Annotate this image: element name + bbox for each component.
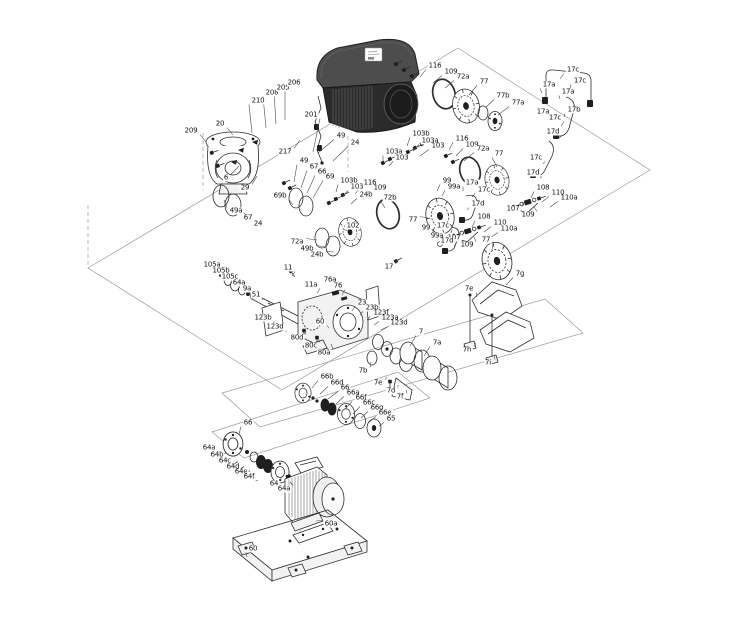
part-label: 99 <box>421 225 432 232</box>
part-label: 77 <box>479 79 490 86</box>
part-label: 206 <box>287 80 302 87</box>
part-label: 77 <box>408 217 419 224</box>
part-label: 7e <box>464 286 474 293</box>
part-label: 17d <box>440 238 455 245</box>
part-label: 123b <box>253 315 272 322</box>
part-label: 110a <box>560 195 579 202</box>
part-label: 7a <box>432 340 442 347</box>
part-label: 80d <box>290 335 305 342</box>
part-label: 77 <box>494 151 505 158</box>
part-label: 24b <box>359 192 374 199</box>
part-label: 17c <box>477 187 491 194</box>
part-label: 103 <box>395 155 410 162</box>
part-label: 76 <box>333 283 344 290</box>
part-label: 7i <box>484 360 492 367</box>
part-label: 17d <box>471 201 486 208</box>
part-label: 24 <box>350 140 361 147</box>
part-label: 17b <box>567 107 582 114</box>
part-label: 64a <box>277 486 292 493</box>
part-label: 77 <box>481 237 492 244</box>
part-label: 64f <box>243 474 256 481</box>
part-label: 99a <box>447 184 462 191</box>
part-label: 20 <box>215 121 226 128</box>
part-label: 29 <box>240 185 251 192</box>
part-label: 17a <box>561 89 576 96</box>
exploded-parts-diagram: 2092021020820520620121762949244967666969… <box>0 0 752 632</box>
part-label: 77b <box>496 93 511 100</box>
part-label: 49 <box>299 158 310 165</box>
part-label: 72b <box>383 195 398 202</box>
part-label: 11 <box>283 265 294 272</box>
part-label: 69b <box>273 193 288 200</box>
part-label: 17d <box>526 170 541 177</box>
part-label: 7h <box>462 347 473 354</box>
part-label: 108 <box>536 185 551 192</box>
part-label: 110a <box>500 226 519 233</box>
part-label: 103 <box>431 143 446 150</box>
part-label: 102 <box>346 223 361 230</box>
coupling-guard <box>464 282 534 365</box>
part-label: 72a <box>476 146 491 153</box>
part-label: 7f <box>396 394 405 401</box>
part-label: 24b <box>310 252 325 259</box>
part-label: 17c <box>566 67 580 74</box>
part-label: 123d <box>265 324 284 331</box>
part-label: 17c <box>573 78 587 85</box>
part-label: 17c <box>548 115 562 122</box>
part-label: 72a <box>456 74 471 81</box>
part-label: 49 <box>336 133 347 140</box>
part-label: 7e <box>373 380 383 387</box>
bearing-seal-set <box>367 335 457 401</box>
part-label: 77a <box>511 100 526 107</box>
part-label: 209 <box>184 128 199 135</box>
part-label: 123d <box>389 320 408 327</box>
part-label: 60a <box>324 521 339 528</box>
part-label: 49a <box>229 208 244 215</box>
part-label: 17c <box>436 223 450 230</box>
base-motor <box>285 457 344 543</box>
part-label: 116 <box>428 63 443 70</box>
part-label: 69 <box>325 174 336 181</box>
sleeve-2 <box>423 356 457 390</box>
part-label: 17d <box>546 129 561 136</box>
part-label: 210 <box>251 98 266 105</box>
part-label: 67 <box>243 215 254 222</box>
part-label: 17 <box>384 264 395 271</box>
part-label: 109 <box>521 212 536 219</box>
part-label: 7d <box>386 388 397 395</box>
part-label: 201 <box>304 112 319 119</box>
part-label: 217 <box>278 149 293 156</box>
part-label: 109 <box>460 242 475 249</box>
part-label: 17a <box>542 82 557 89</box>
part-label: 51 <box>251 292 262 299</box>
part-label: 65 <box>386 416 397 423</box>
part-label: 108 <box>477 214 492 221</box>
part-label: 80c <box>304 343 318 350</box>
part-label: 24 <box>253 221 264 228</box>
part-label: 17c <box>529 155 543 162</box>
part-label: 66 <box>243 420 254 427</box>
part-label: 109 <box>373 185 388 192</box>
part-label: 7g <box>515 271 526 278</box>
drive-motor-with-frequency-converter <box>317 39 419 132</box>
part-label: 60 <box>315 319 326 326</box>
part-label: 60 <box>248 546 259 553</box>
part-label: 107 <box>506 206 521 213</box>
part-label: 11a <box>304 282 319 289</box>
part-label: 6 <box>223 175 229 182</box>
part-label: 80a <box>317 350 332 357</box>
part-label: 7b <box>358 368 369 375</box>
part-label: 7 <box>418 329 424 336</box>
